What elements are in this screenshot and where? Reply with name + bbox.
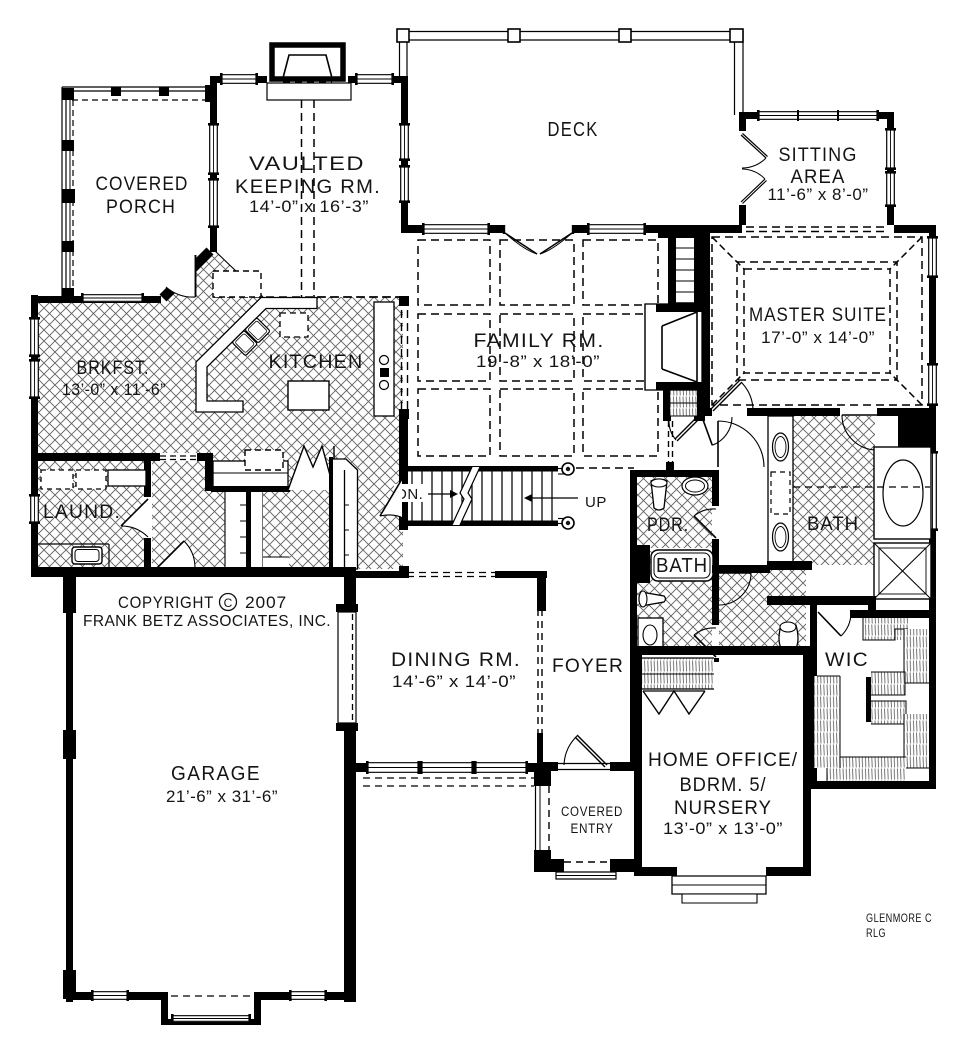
svg-text:ENTRY: ENTRY	[571, 821, 614, 836]
svg-text:KITCHEN: KITCHEN	[269, 351, 364, 373]
svg-text:HOME OFFICE/: HOME OFFICE/	[648, 749, 798, 771]
svg-text:FRANK BETZ ASSOCIATES, INC.: FRANK BETZ ASSOCIATES, INC.	[83, 613, 331, 630]
svg-text:17’-0” x 14’-0”: 17’-0” x 14’-0”	[761, 329, 875, 347]
svg-text:21’-6” x 31’-6”: 21’-6” x 31’-6”	[166, 787, 278, 806]
svg-text:DECK: DECK	[548, 119, 599, 141]
svg-text:MASTER SUITE: MASTER SUITE	[749, 304, 887, 326]
svg-text:WIC: WIC	[825, 650, 869, 671]
svg-text:11’-6” x 8’-0”: 11’-6” x 8’-0”	[768, 186, 869, 204]
svg-text:GLENMORE C: GLENMORE C	[866, 911, 932, 925]
svg-text:VAULTED: VAULTED	[249, 153, 365, 175]
svg-text:COPYRIGHT: COPYRIGHT	[118, 593, 214, 612]
svg-text:AREA: AREA	[791, 166, 846, 188]
svg-text:UP: UP	[585, 494, 607, 511]
svg-text:PORCH: PORCH	[106, 196, 176, 218]
svg-text:COVERED: COVERED	[561, 804, 623, 819]
svg-text:FAMILY RM.: FAMILY RM.	[474, 330, 605, 352]
svg-text:PDR.: PDR.	[647, 515, 689, 536]
svg-text:2007: 2007	[245, 593, 287, 612]
svg-text:14’-6” x 14’-0”: 14’-6” x 14’-0”	[392, 673, 516, 691]
svg-text:NURSERY: NURSERY	[674, 797, 772, 819]
svg-text:RLG: RLG	[866, 926, 886, 940]
svg-text:BDRM. 5/: BDRM. 5/	[680, 774, 767, 796]
svg-text:C: C	[224, 596, 233, 610]
svg-text:13’-0” x 11’-6”: 13’-0” x 11’-6”	[62, 381, 166, 399]
svg-text:BATH: BATH	[656, 555, 708, 577]
svg-text:DINING RM.: DINING RM.	[391, 649, 521, 671]
svg-text:13’-0” x 13’-0”: 13’-0” x 13’-0”	[663, 820, 783, 838]
svg-text:BRKFST.: BRKFST.	[77, 357, 150, 379]
svg-text:LAUND.: LAUND.	[43, 501, 121, 523]
svg-text:KEEPING RM.: KEEPING RM.	[235, 176, 381, 198]
svg-text:14’-0” x 16’-3”: 14’-0” x 16’-3”	[249, 198, 369, 216]
svg-text:FOYER: FOYER	[552, 655, 624, 677]
svg-text:BATH: BATH	[807, 514, 859, 535]
svg-text:COVERED: COVERED	[96, 173, 189, 195]
svg-text:GARAGE: GARAGE	[171, 763, 261, 785]
svg-text:19’-8” x 18’-0”: 19’-8” x 18’-0”	[476, 353, 600, 371]
svg-text:SITTING: SITTING	[779, 144, 858, 166]
